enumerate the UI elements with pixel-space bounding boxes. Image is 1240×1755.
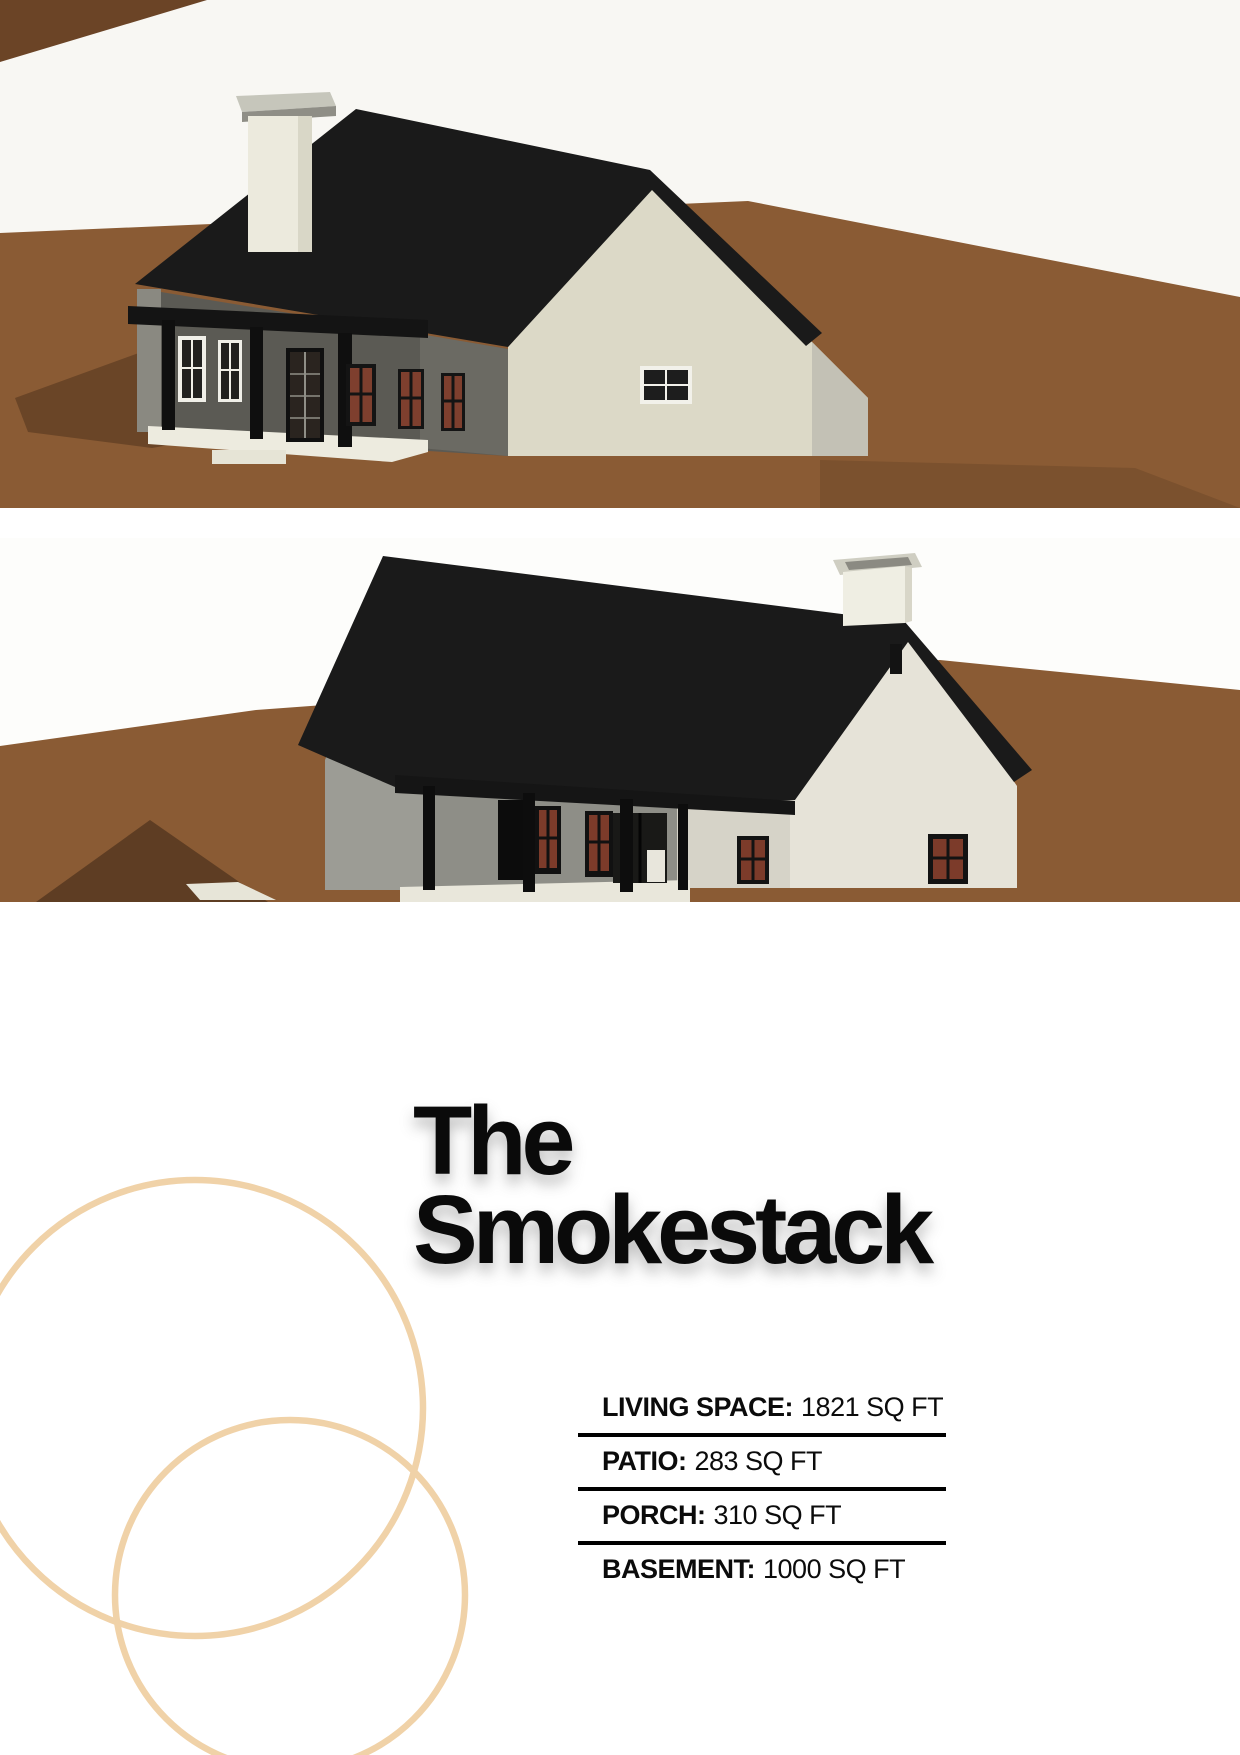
house-render-front-right — [0, 538, 1240, 902]
window-red-4 — [928, 834, 968, 884]
spec-separator: : — [785, 1392, 794, 1422]
spec-value: 1821 SQ FT — [801, 1392, 943, 1422]
spec-label: PATIO — [602, 1446, 678, 1476]
spec-separator: : — [747, 1554, 756, 1584]
window-red-2 — [398, 369, 424, 429]
spec-row-porch: PORCH:310 SQ FT — [578, 1491, 946, 1545]
window-red-3 — [737, 836, 769, 884]
window-red-1 — [346, 364, 376, 426]
spec-separator: : — [697, 1500, 706, 1530]
spec-value: 1000 SQ FT — [763, 1554, 905, 1584]
porch-step — [212, 450, 286, 464]
spec-separator: : — [678, 1446, 687, 1476]
window-red-1 — [535, 806, 561, 874]
french-door — [286, 348, 324, 442]
spec-value: 283 SQ FT — [695, 1446, 823, 1476]
spec-row-patio: PATIO:283 SQ FT — [578, 1437, 946, 1491]
gable-vent — [890, 644, 902, 674]
spec-label: BASEMENT — [602, 1554, 747, 1584]
porch-window-1 — [178, 336, 206, 402]
spec-row-basement: BASEMENT:1000 SQ FT — [578, 1545, 946, 1595]
porch-window-2 — [218, 340, 242, 402]
spec-label: PORCH — [602, 1500, 697, 1530]
window-red-3 — [441, 373, 465, 431]
page-title-line-2: Smokestack — [413, 1185, 1033, 1274]
decor-circle-2 — [115, 1420, 465, 1755]
page-title-line-1: The — [413, 1096, 1033, 1185]
flyer-page: The Smokestack LIVING SPACE:1821 SQ FT P… — [0, 0, 1240, 1755]
chimney — [833, 553, 922, 626]
spec-value: 310 SQ FT — [714, 1500, 842, 1530]
page-title: The Smokestack — [413, 1096, 1033, 1274]
gable-window — [640, 366, 692, 404]
window-red-2 — [585, 811, 613, 877]
spec-table: LIVING SPACE:1821 SQ FT PATIO:283 SQ FT … — [578, 1383, 946, 1595]
spec-label: LIVING SPACE — [602, 1392, 785, 1422]
spec-row-living-space: LIVING SPACE:1821 SQ FT — [578, 1383, 946, 1437]
house-render-rear-left — [0, 0, 1240, 508]
decor-circle-1 — [0, 1180, 423, 1636]
